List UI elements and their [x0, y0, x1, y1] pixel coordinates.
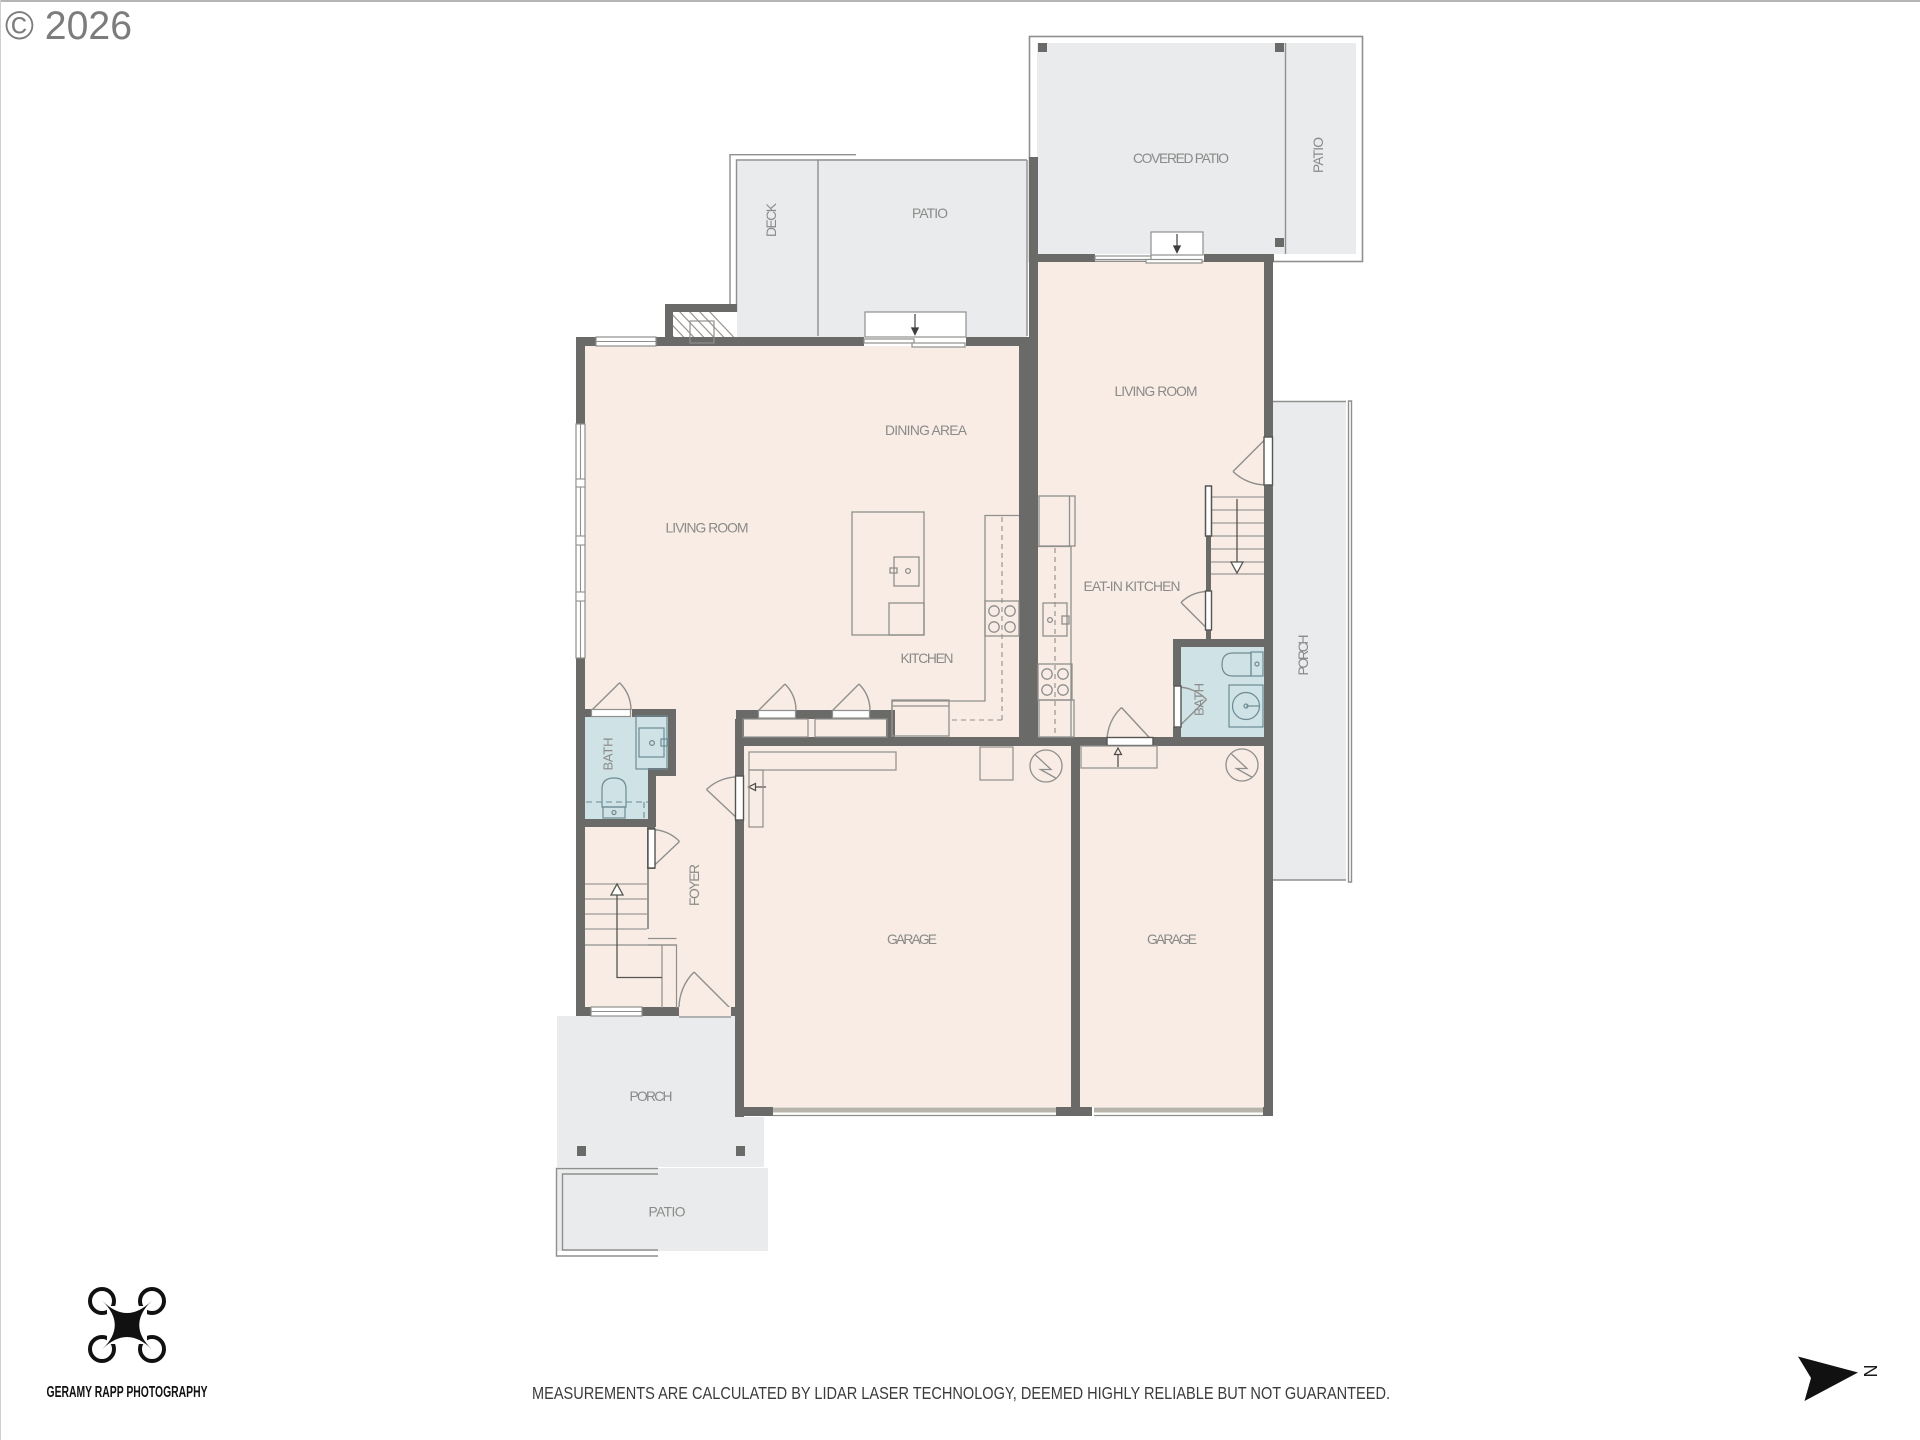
svg-text:© 2026: © 2026 [5, 4, 132, 48]
svg-text:DINING AREA: DINING AREA [885, 423, 968, 438]
svg-text:N: N [1860, 1365, 1880, 1378]
svg-text:COVERED PATIO: COVERED PATIO [1133, 151, 1229, 166]
svg-text:DECK: DECK [764, 202, 779, 237]
svg-text:MEASUREMENTS ARE CALCULATED BY: MEASUREMENTS ARE CALCULATED BY LIDAR LAS… [532, 1383, 1390, 1403]
svg-text:PATIO: PATIO [1311, 137, 1326, 173]
svg-text:LIVING ROOM: LIVING ROOM [666, 521, 749, 536]
svg-text:LIVING ROOM: LIVING ROOM [1115, 384, 1198, 399]
svg-text:EAT-IN KITCHEN: EAT-IN KITCHEN [1084, 579, 1181, 594]
svg-text:FOYER: FOYER [687, 864, 702, 906]
svg-text:GARAGE: GARAGE [1147, 932, 1197, 947]
svg-text:PATIO: PATIO [649, 1205, 686, 1220]
svg-text:GERAMY RAPP PHOTOGRAPHY: GERAMY RAPP PHOTOGRAPHY [47, 1384, 208, 1401]
svg-text:BATH: BATH [601, 738, 616, 771]
svg-text:BATH: BATH [1192, 683, 1207, 716]
svg-text:PATIO: PATIO [912, 206, 948, 221]
svg-text:GARAGE: GARAGE [887, 932, 937, 947]
svg-text:PORCH: PORCH [630, 1089, 673, 1104]
svg-text:PORCH: PORCH [1296, 635, 1311, 676]
svg-text:KITCHEN: KITCHEN [901, 651, 954, 666]
